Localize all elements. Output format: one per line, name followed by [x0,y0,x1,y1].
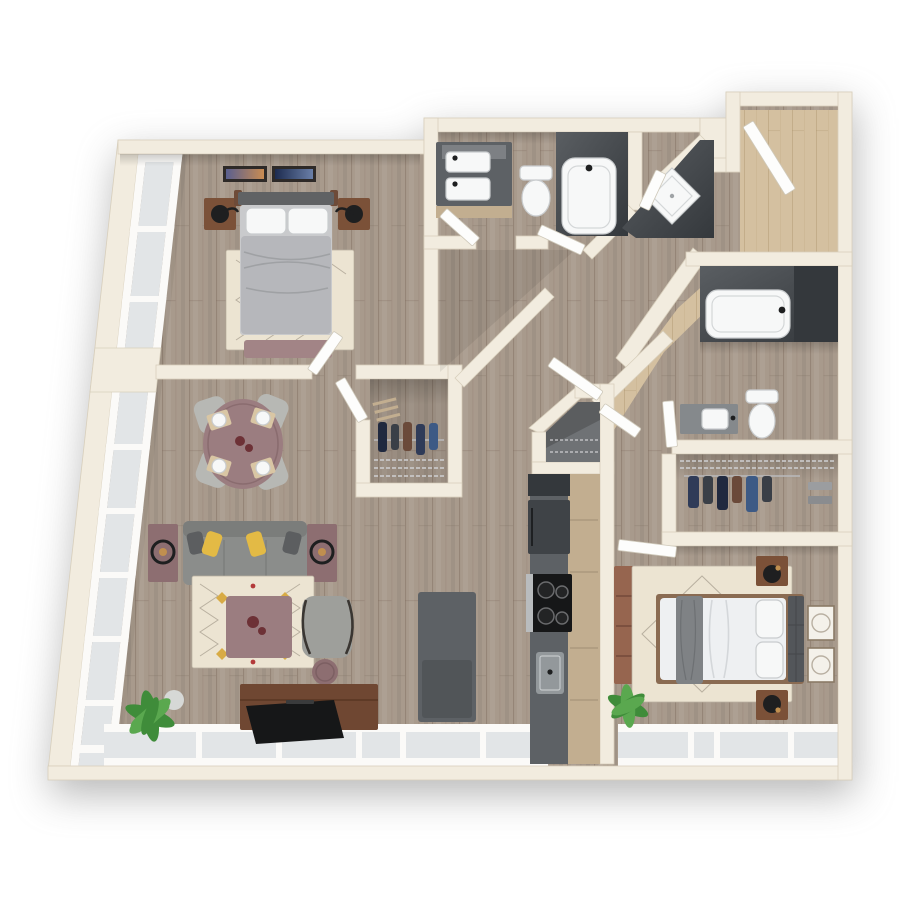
window-mullion [84,636,129,642]
window-mullion [400,724,406,766]
plate [212,413,226,427]
bathtub [706,290,790,338]
lamp-finial [775,707,780,712]
entry-north-wall [726,92,852,106]
window-mullion [196,724,202,766]
hanging-garment [416,424,425,455]
toilet-bowl [522,180,550,216]
closet1-east-wall [448,365,462,497]
rug-group [192,576,314,668]
rug-dot [251,660,256,665]
window-frame [618,724,838,732]
hanging-garment [429,423,438,450]
plate [256,411,270,425]
faucet-icon [547,669,552,674]
wall-shadow [700,342,838,354]
faucet-icon [731,416,736,421]
table-decor [247,616,259,628]
hanging-garment [391,424,399,450]
pillow [288,208,328,234]
accent-chair [302,596,352,658]
pillow [246,208,286,234]
burner-icon [538,608,554,624]
toilet-bowl [749,404,775,438]
tv-stand [286,700,314,704]
wall-shadow [120,154,420,166]
wall-divider [90,348,161,392]
kitchen-east-wall [600,384,614,764]
outer-wall-right [838,92,852,780]
pantry-west-wall [532,432,546,462]
sink-basin [702,409,728,429]
burner-icon [538,582,554,598]
shower-fixture-icon [586,165,593,172]
bath2-south-wall [672,440,852,454]
bottom-window-wall [48,724,852,780]
hanging-garment [732,476,742,503]
gray-duvet [241,236,331,334]
hanging-garment [688,476,699,508]
pillow [756,642,783,678]
window-mullion [77,700,122,706]
hanging-garment [378,422,387,452]
table-decor [258,627,266,635]
entry-west-wall [726,92,740,172]
sink-basin [446,152,490,172]
window-mullion [480,724,486,766]
closet1-south-wall [356,483,462,497]
apartment-building [48,92,852,780]
hanging-garment [703,476,713,504]
bath1-north-wall [424,118,700,132]
upper-cabinet [528,474,570,496]
dining-set [192,391,292,492]
window-mullion [688,724,694,766]
faucet-icon [452,155,457,160]
hanging-garment [403,422,412,451]
faucet-icon [779,307,786,314]
bath2-north-wall [686,252,852,266]
flat-tv [246,700,344,744]
gray-throw [676,596,703,684]
window-mullion [122,296,167,302]
lamp-finial [159,548,167,556]
drain-icon [670,194,674,198]
walk-in-closet [370,379,448,483]
plate [256,461,270,475]
lamp-finial [318,548,326,556]
bedroom2-north-wall [662,532,852,546]
lamp-finial [775,565,780,570]
island-shade [422,660,472,718]
hanging-garment [746,476,758,512]
outer-wall-bottom [48,766,852,780]
wall-shadow [676,546,838,556]
coffee-table [226,596,292,658]
base-cabinets [568,474,600,764]
closet1-north-wall [356,365,462,379]
wall-art-print [226,169,264,179]
shower-glass [794,266,838,342]
toilet-tank [746,390,778,403]
centerpiece [245,444,253,452]
oven-door-edge [526,574,533,632]
centerpiece [235,436,245,446]
window-mullion [788,724,794,766]
window-mullion [91,572,136,578]
hanging-garment [762,476,772,502]
headboard [238,192,334,205]
rug-dot [251,584,256,589]
window-mullion [98,508,143,514]
hanging-garment [717,476,728,510]
plate [212,459,226,473]
burner-icon [556,612,568,624]
floorplan-render [0,0,900,900]
burner-icon [556,586,568,598]
faucet-icon [452,181,457,186]
toilet-tank [520,166,552,180]
sink-basin [446,178,490,200]
window-mullion [130,226,175,232]
shelf-item [808,496,832,504]
window-mullion [106,444,151,450]
shelf-item [808,482,832,490]
pillow [756,600,783,638]
wall-art-print [275,169,313,179]
bedroom1-south-wall [156,365,312,379]
sofa-group [148,521,337,585]
bedroom1-north-wall [118,140,424,154]
bath1-east-wall [628,132,642,210]
refrigerator [528,500,570,554]
window-mullion [356,724,362,766]
window-frame [618,758,838,766]
window-glass [618,732,838,758]
window-mullion [714,724,720,766]
